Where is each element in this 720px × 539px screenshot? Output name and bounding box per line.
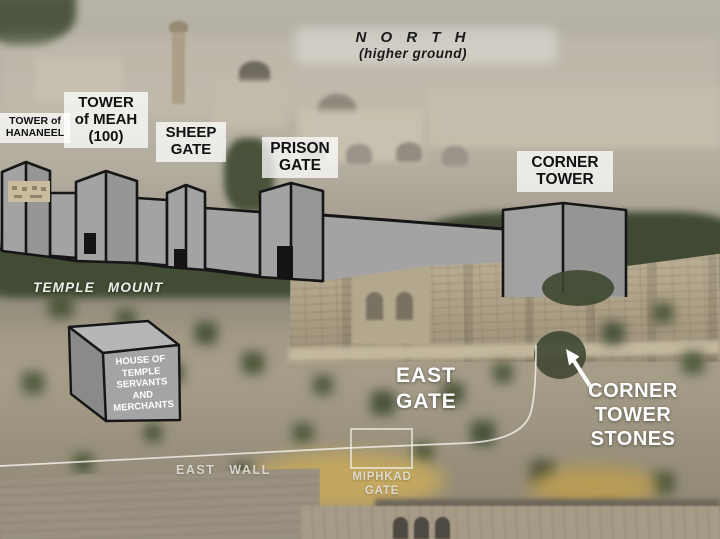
doorway-icon [277, 246, 293, 279]
label-line: of MEAH [66, 112, 146, 129]
label-line: GATE [396, 389, 457, 415]
label-tower-meah: TOWER of MEAH (100) [64, 92, 148, 148]
label-corner-tower-stones: CORNER TOWER STONES [563, 379, 703, 451]
sheep-gate-tower-shape [167, 185, 205, 270]
prison-gate-tower-shape [260, 183, 323, 281]
label-sheep-gate: SHEEP GATE [156, 122, 226, 162]
photo-patch [8, 181, 50, 202]
label-line: TOWER [563, 403, 703, 427]
north-subtitle: (higher ground) [333, 46, 493, 61]
wall-segment [137, 198, 167, 267]
label-line: MIPHKAD [345, 471, 419, 485]
meah-tower-shape [76, 171, 137, 263]
doorway-icon [84, 233, 96, 254]
label-temple-mount: TEMPLE MOUNT [33, 280, 163, 295]
label-east-wall: EAST WALL [176, 463, 271, 477]
wall-segment [50, 193, 76, 261]
label-prison-gate: PRISON GATE [262, 137, 338, 178]
label-line: GATE [264, 157, 336, 174]
overlay-diagram [0, 0, 720, 539]
foreground-trees [542, 270, 614, 306]
label-line: STONES [563, 427, 703, 451]
doorway-icon [174, 249, 187, 268]
label-servants-house: HOUSE OF TEMPLE SERVANTS AND MERCHANTS [99, 352, 185, 415]
wall-segment [205, 208, 260, 277]
label-line: CORNER [519, 154, 611, 171]
label-north: N O R T H (higher ground) [333, 29, 493, 61]
label-tower-hananeel: TOWER of HANANEEL [0, 113, 70, 143]
miphkad-gate-box [351, 429, 412, 468]
label-line: CORNER [563, 379, 703, 403]
label-east-gate: EAST GATE [396, 363, 457, 415]
label-line: TOWER [519, 171, 611, 188]
foreground-trees [534, 331, 586, 379]
label-line: HANANEEL [2, 128, 68, 140]
north-title: N O R T H [333, 29, 493, 46]
label-line: GATE [345, 485, 419, 499]
label-line: EAST [396, 363, 457, 389]
label-miphkad-gate: MIPHKAD GATE [345, 471, 419, 498]
label-line: TOWER of [2, 116, 68, 128]
annotated-photo: N O R T H (higher ground) TOWER of HANAN… [0, 0, 720, 539]
label-corner-tower: CORNER TOWER [517, 151, 613, 192]
label-line: GATE [158, 142, 224, 159]
label-line: TOWER [66, 95, 146, 112]
label-line: SHEEP [158, 125, 224, 142]
hananeel-tower-shape [2, 162, 50, 257]
label-line: (100) [66, 129, 146, 146]
label-line: PRISON [264, 140, 336, 157]
